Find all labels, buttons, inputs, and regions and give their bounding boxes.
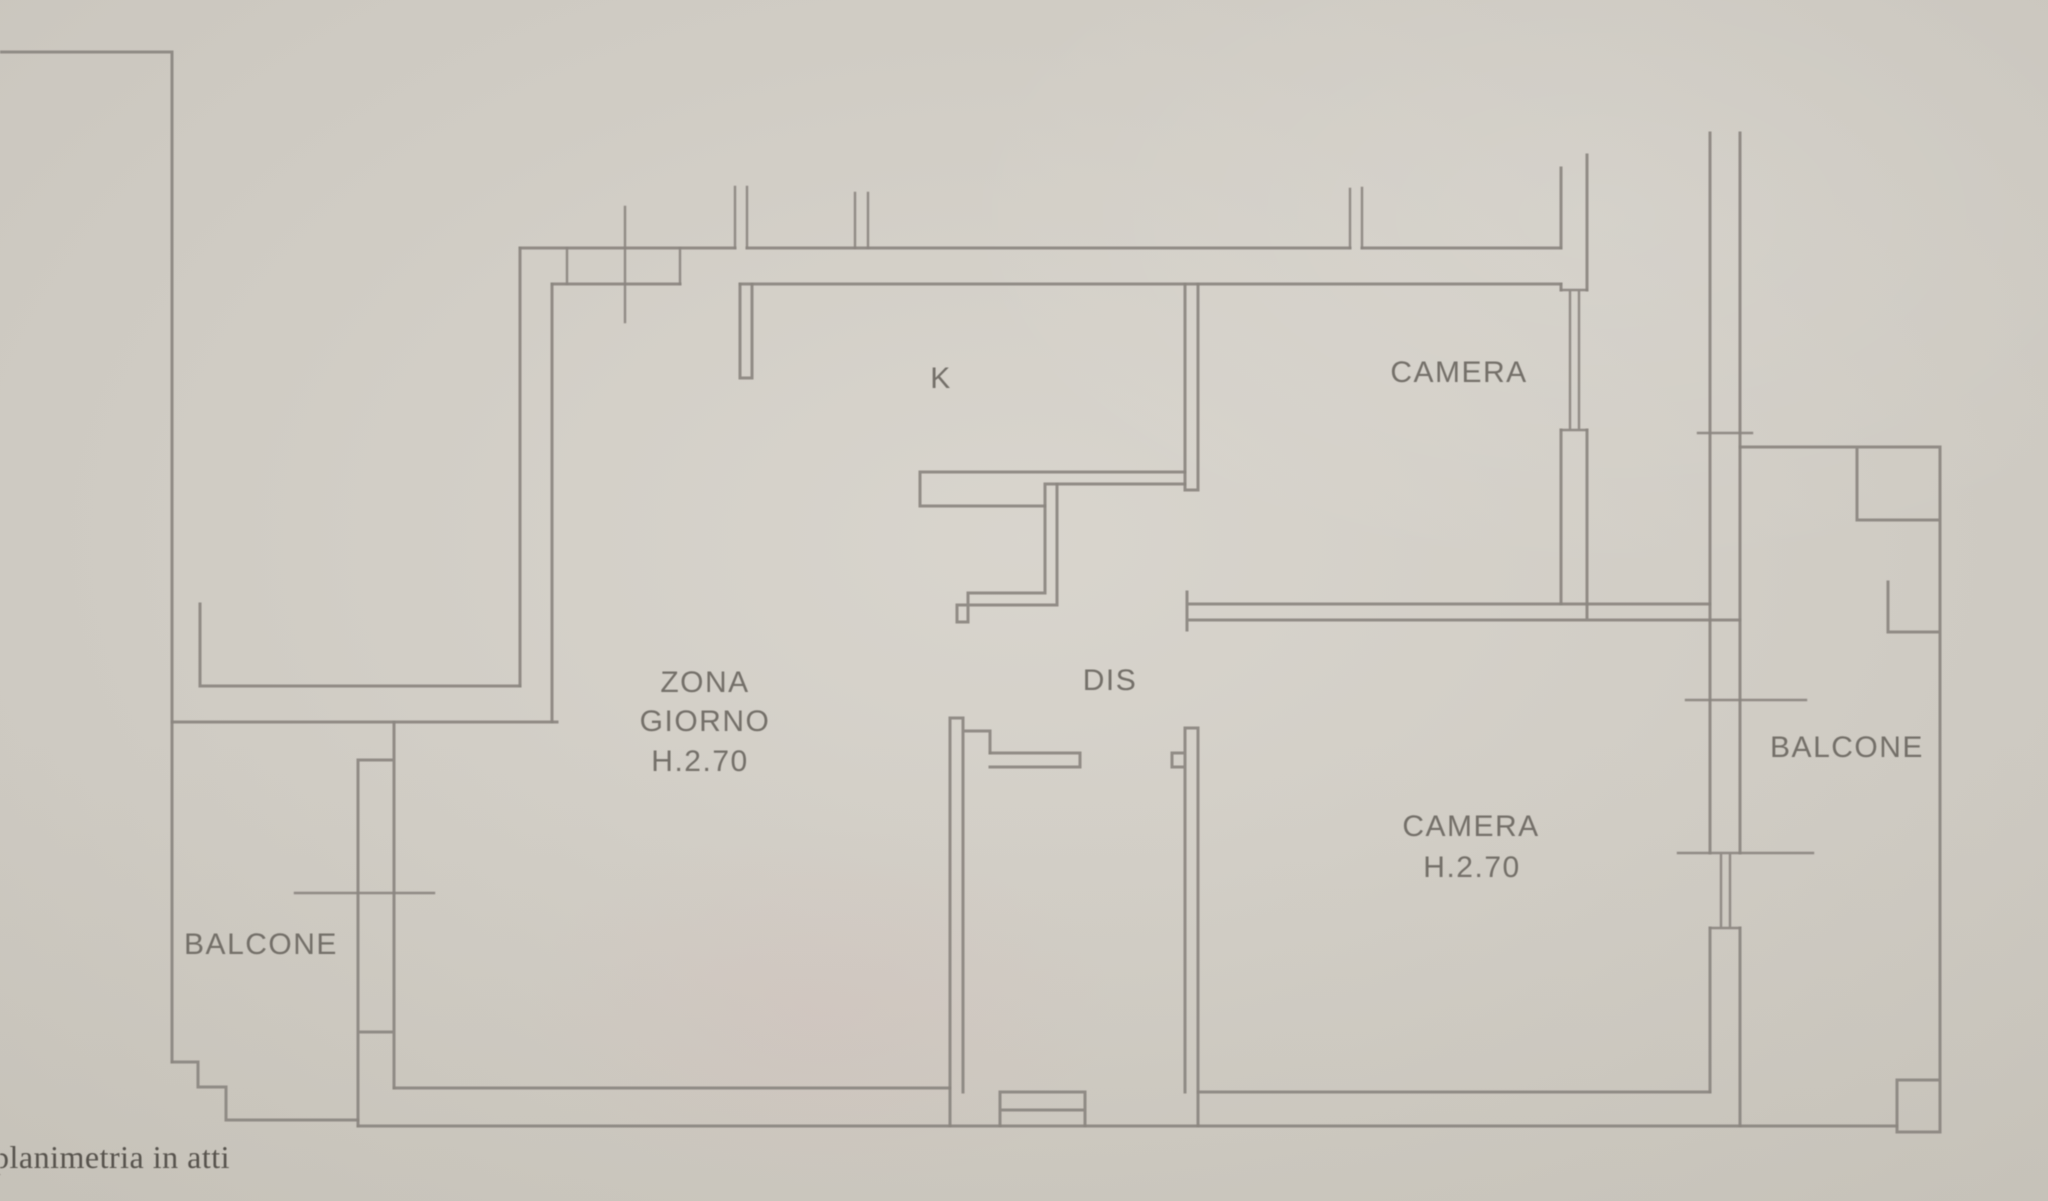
floor-plan-photo: ZONA GIORNO H.2.70 K DIS CAMERA CAMERA H… [0, 0, 2048, 1201]
camera-nord-window [1561, 290, 1587, 430]
floor-plan-canvas: ZONA GIORNO H.2.70 K DIS CAMERA CAMERA H… [0, 0, 2048, 1201]
northwest-column-wall [0, 52, 172, 1062]
label-dis: DIS [1083, 664, 1138, 697]
apartment-west-wall [520, 248, 552, 722]
camera-sud-west-wall [1172, 728, 1198, 1126]
shaft-door-threshold [990, 753, 1080, 767]
kitchen-stub-wall [740, 284, 752, 378]
label-zona-giorno-line1: ZONA [660, 666, 749, 699]
balcone-west-outline [172, 1062, 358, 1120]
label-camera-sud: CAMERA [1402, 810, 1539, 843]
west-wall-band [172, 604, 557, 722]
east-wall-window [1678, 853, 1813, 928]
east-wall [1710, 133, 1740, 1126]
camera-nord-west-wall [1185, 284, 1198, 490]
south-wall-window-box [1000, 1092, 1085, 1126]
label-balcone-east: BALCONE [1770, 731, 1924, 764]
label-balcone-west: BALCONE [184, 928, 338, 961]
north-wall-party-ticks [735, 187, 1362, 248]
label-kitchen: K [930, 362, 952, 395]
label-zona-giorno-line2: GIORNO [640, 705, 771, 738]
dis-north-wall [920, 472, 1185, 506]
label-camera-nord: CAMERA [1390, 356, 1527, 389]
balcone-west-door-wall [358, 722, 394, 1126]
east-wall-ticks [1686, 433, 1806, 700]
camera-divider-wall [1187, 592, 1740, 630]
balcone-east-outline [1740, 447, 1940, 1132]
walls [0, 52, 1940, 1132]
camera-nord-east-wall [1561, 155, 1587, 617]
shaft-west-wall [950, 718, 990, 1126]
caption-planimetria: planimetria in atti [0, 1139, 230, 1175]
north-wall-window-jambs [567, 248, 680, 284]
label-zona-giorno-height: H.2.70 [651, 745, 748, 778]
label-camera-sud-height: H.2.70 [1423, 851, 1520, 884]
